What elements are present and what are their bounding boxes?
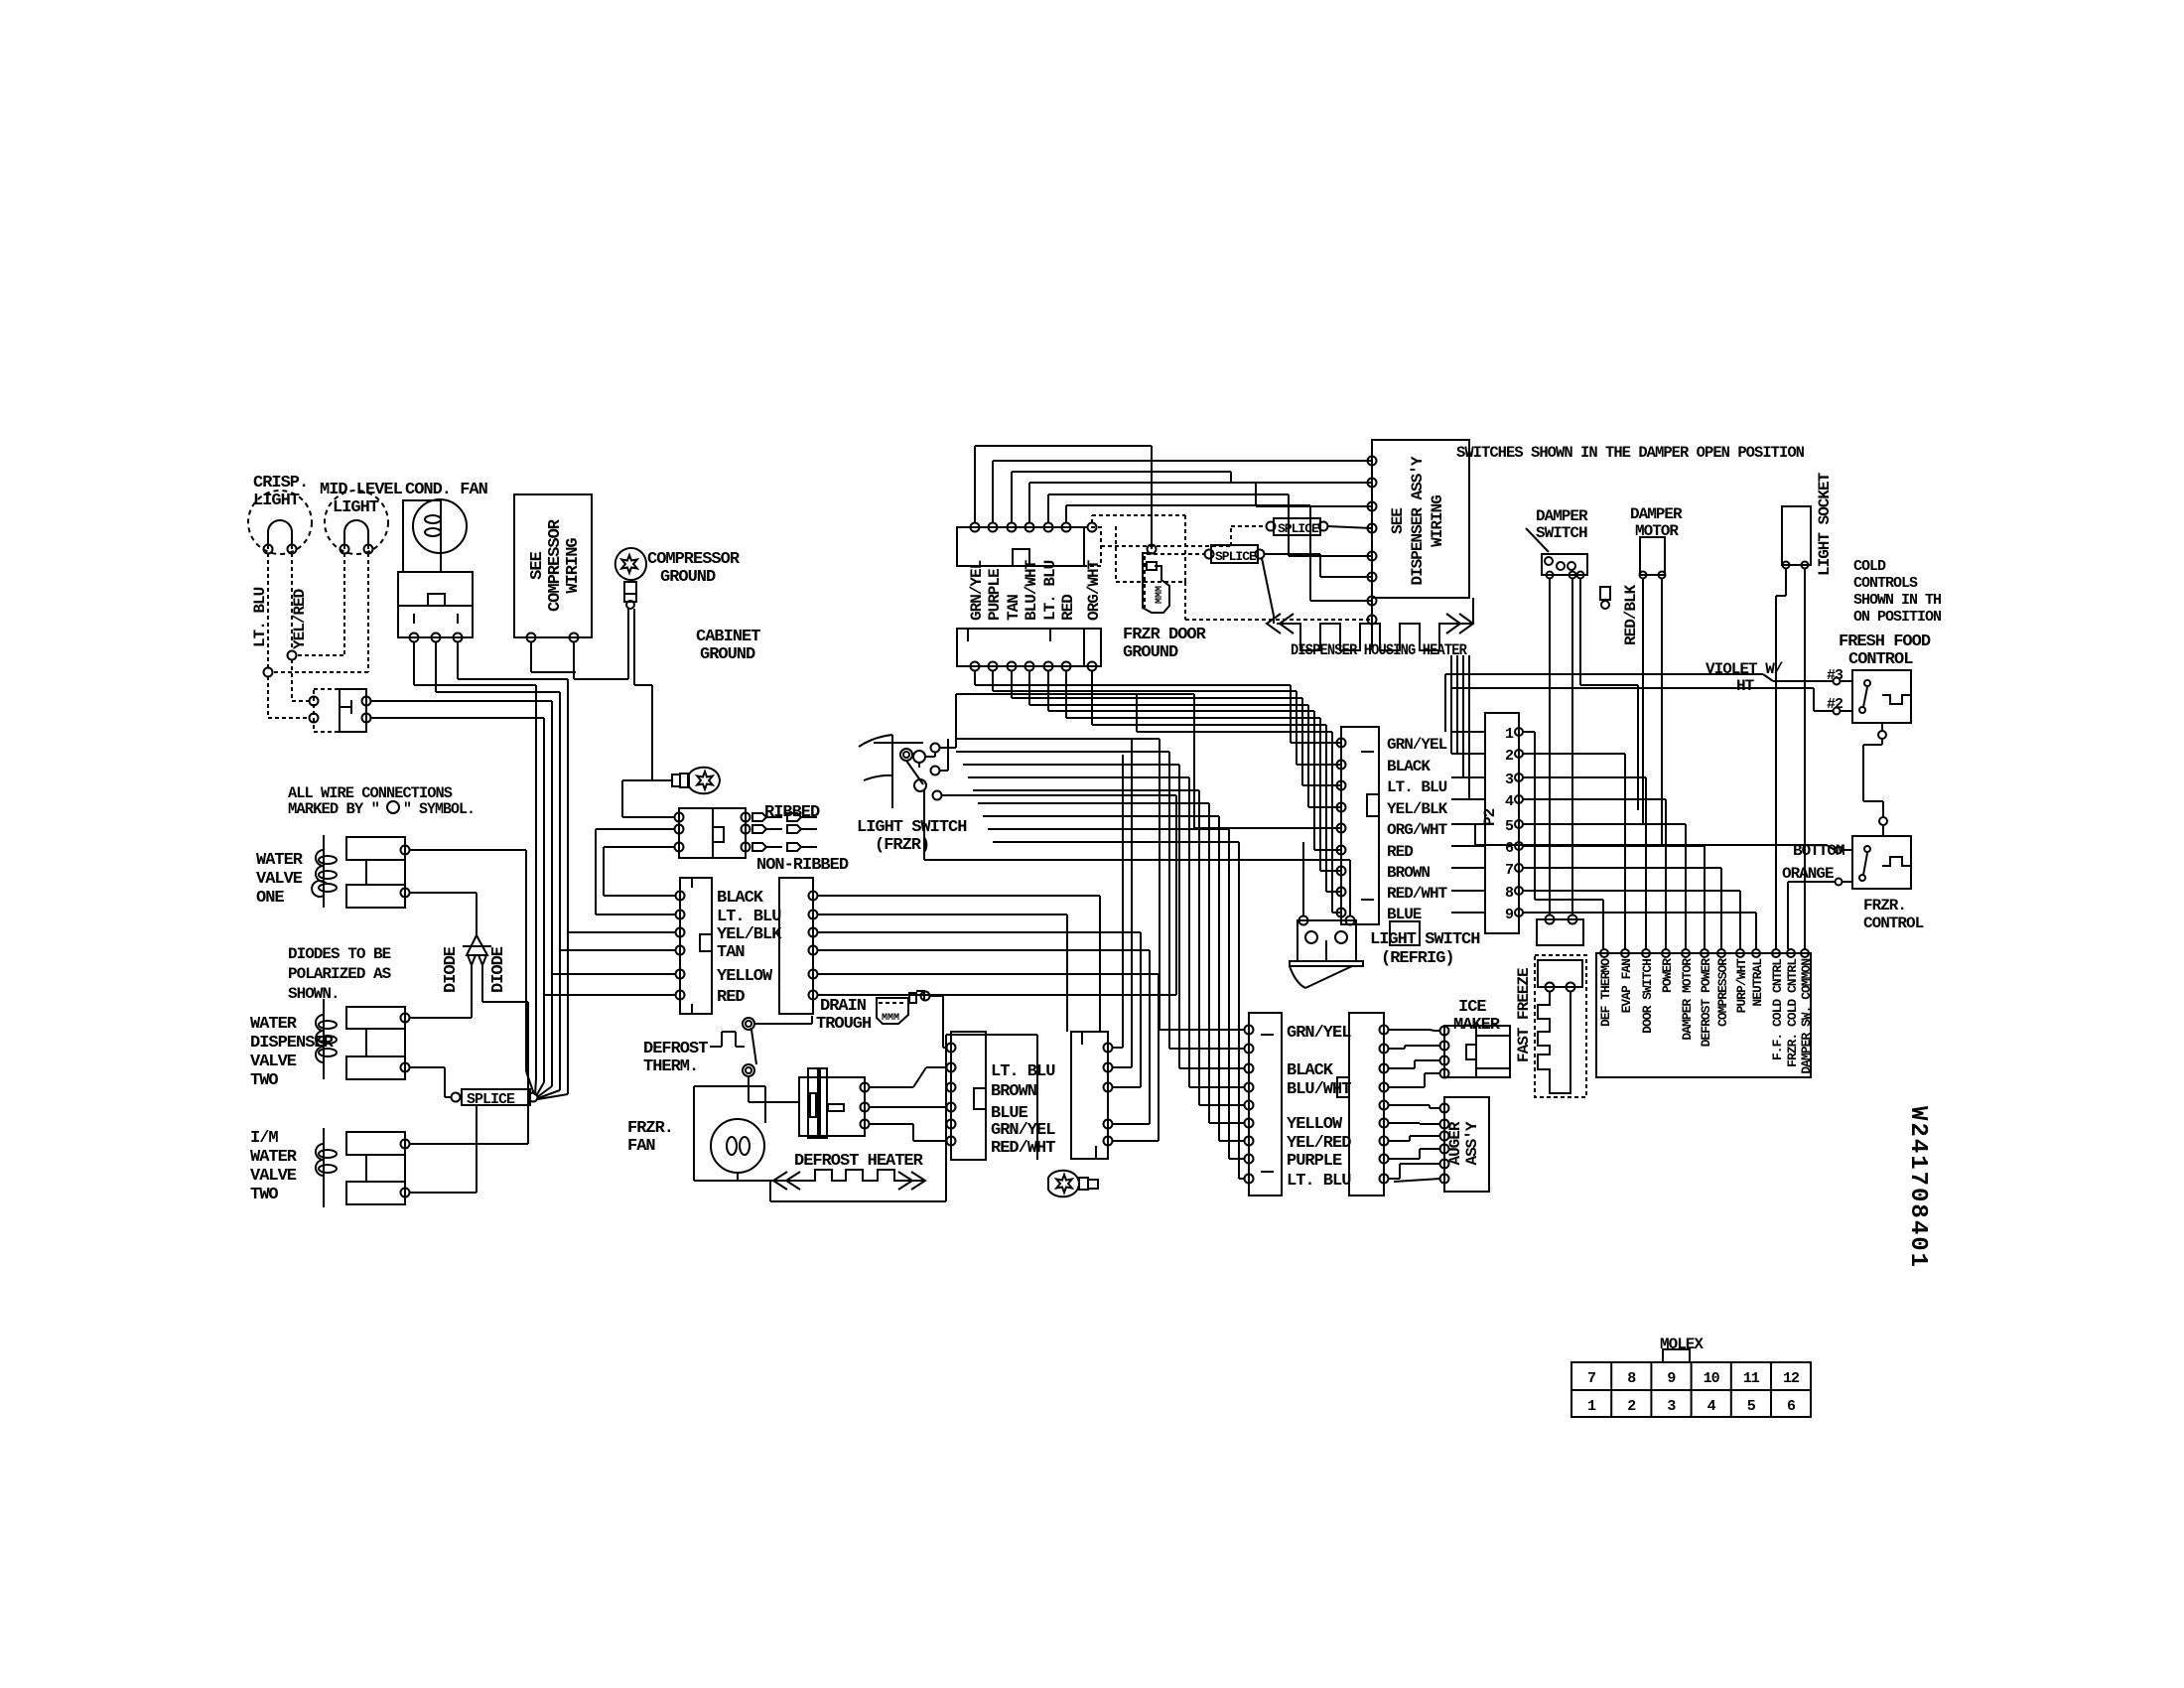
svg-text:ORG/WHT: ORG/WHT — [1387, 821, 1448, 839]
svg-text:4: 4 — [1707, 1398, 1716, 1415]
svg-text:COLD: COLD — [1853, 558, 1886, 575]
svg-text:" SYMBOL.: " SYMBOL. — [403, 800, 475, 818]
svg-text:VALVE: VALVE — [256, 870, 303, 889]
svg-text:FRZR.: FRZR. — [627, 1119, 673, 1138]
svg-text:W241708401: W241708401 — [1904, 1106, 1931, 1269]
svg-text:GROUND: GROUND — [700, 645, 755, 664]
svg-text:CABINET: CABINET — [696, 628, 760, 646]
svg-text:MMM: MMM — [1155, 586, 1165, 604]
svg-text:RED/WHT: RED/WHT — [991, 1139, 1055, 1158]
svg-text:ICE: ICE — [1458, 998, 1486, 1017]
svg-text:ORANGE: ORANGE — [1782, 865, 1834, 883]
svg-text:1: 1 — [1587, 1398, 1596, 1415]
svg-text:RED: RED — [717, 988, 745, 1007]
svg-text:DEFROST: DEFROST — [643, 1040, 708, 1058]
svg-text:COND. FAN: COND. FAN — [405, 481, 488, 499]
svg-text:F.F. COLD CNTRL: F.F. COLD CNTRL — [1770, 958, 1785, 1060]
svg-text:SPLICE: SPLICE — [1215, 549, 1257, 564]
svg-text:VALVE: VALVE — [250, 1053, 297, 1071]
svg-text:6: 6 — [1505, 840, 1514, 857]
svg-text:COMPRESSOR: COMPRESSOR — [546, 518, 565, 612]
svg-text:YELLOW: YELLOW — [1287, 1115, 1343, 1134]
svg-text:3: 3 — [1505, 772, 1514, 788]
svg-text:BLU/WHT: BLU/WHT — [1287, 1080, 1351, 1099]
svg-text:SHOWN.: SHOWN. — [288, 985, 340, 1003]
svg-text:RED/WHT: RED/WHT — [1387, 885, 1448, 903]
svg-text:EVAP FAN: EVAP FAN — [1619, 959, 1634, 1014]
svg-text:BLACK: BLACK — [1287, 1061, 1334, 1080]
svg-text:CONTROLS: CONTROLS — [1853, 575, 1918, 592]
svg-text:LT. BLU: LT. BLU — [1387, 778, 1447, 796]
svg-text:9: 9 — [1505, 907, 1514, 923]
svg-text:POWER: POWER — [1660, 958, 1675, 993]
svg-text:YEL/RED: YEL/RED — [291, 589, 309, 649]
svg-text:BROWN: BROWN — [1387, 864, 1430, 882]
svg-text:DIODE: DIODE — [489, 946, 508, 993]
svg-text:1: 1 — [1505, 726, 1514, 743]
svg-text:DAMPER: DAMPER — [1536, 507, 1588, 525]
svg-text:ON POSITION: ON POSITION — [1853, 609, 1942, 626]
svg-text:FRZR DOOR: FRZR DOOR — [1123, 626, 1207, 644]
svg-text:HT: HT — [1736, 677, 1755, 695]
svg-text:DIODES TO BE: DIODES TO BE — [288, 945, 391, 963]
svg-text:NON-RIBBED: NON-RIBBED — [756, 856, 849, 875]
svg-text:2: 2 — [1505, 748, 1514, 765]
svg-text:MOLEX: MOLEX — [1660, 1336, 1704, 1353]
svg-text:LT. BLU: LT. BLU — [717, 908, 781, 926]
svg-text:BLACK: BLACK — [717, 889, 764, 908]
svg-text:SEE: SEE — [1389, 508, 1407, 534]
svg-text:FAST FREEZE: FAST FREEZE — [1515, 968, 1533, 1062]
svg-text:11: 11 — [1743, 1370, 1760, 1387]
svg-text:I/M: I/M — [250, 1129, 278, 1148]
svg-text:YEL/BLK: YEL/BLK — [1387, 800, 1448, 818]
svg-text:WIRING: WIRING — [564, 538, 583, 594]
svg-text:ONE: ONE — [256, 889, 284, 908]
svg-text:DRAIN: DRAIN — [820, 997, 867, 1016]
svg-text:4: 4 — [1505, 793, 1514, 810]
svg-text:LIGHT SWITCH: LIGHT SWITCH — [857, 818, 967, 837]
svg-text:DAMPER SW. COMMON: DAMPER SW. COMMON — [1799, 959, 1814, 1074]
svg-text:BLU/WHT: BLU/WHT — [1023, 559, 1040, 621]
svg-text:2: 2 — [1627, 1398, 1636, 1415]
svg-text:NEUTRAL: NEUTRAL — [1750, 958, 1765, 1007]
svg-text:9: 9 — [1667, 1370, 1676, 1387]
svg-text:PURPLE: PURPLE — [1287, 1152, 1342, 1171]
svg-text:6: 6 — [1787, 1398, 1796, 1415]
svg-text:10: 10 — [1704, 1370, 1720, 1387]
svg-text:8: 8 — [1627, 1370, 1636, 1387]
svg-text:GRN/YEL: GRN/YEL — [968, 560, 986, 621]
svg-text:PURPLE: PURPLE — [986, 569, 1004, 621]
svg-text:(REFRIG): (REFRIG) — [1381, 949, 1454, 968]
svg-text:LIGHT: LIGHT — [333, 498, 379, 517]
svg-text:POLARIZED AS: POLARIZED AS — [288, 965, 392, 983]
svg-text:DEF THERMO: DEF THERMO — [1598, 958, 1613, 1027]
svg-text:WATER: WATER — [250, 1015, 298, 1034]
svg-text:COMPRESSOR: COMPRESSOR — [647, 550, 741, 569]
svg-text:CRISP.: CRISP. — [253, 474, 308, 492]
svg-text:(FRZR): (FRZR) — [875, 836, 929, 855]
svg-text:ORG/WHT: ORG/WHT — [1085, 559, 1103, 621]
svg-text:RED: RED — [1387, 843, 1413, 861]
svg-text:DIODE: DIODE — [442, 946, 461, 993]
svg-text:LIGHT SOCKET: LIGHT SOCKET — [1816, 472, 1834, 576]
svg-text:BLACK: BLACK — [1387, 758, 1431, 775]
svg-text:CONTROL: CONTROL — [1863, 914, 1924, 932]
svg-text:LT. BLU: LT. BLU — [251, 587, 269, 647]
svg-text:GRN/YEL: GRN/YEL — [1387, 736, 1447, 754]
svg-text:TAN: TAN — [1005, 595, 1023, 621]
svg-text:GROUND: GROUND — [660, 568, 716, 587]
svg-text:3: 3 — [1667, 1398, 1676, 1415]
svg-text:5: 5 — [1505, 818, 1514, 835]
svg-text:VALVE: VALVE — [250, 1167, 297, 1186]
svg-text:YELLOW: YELLOW — [717, 967, 773, 986]
svg-text:WATER: WATER — [250, 1148, 298, 1167]
svg-text:DISPENSER HOUSING HEATER: DISPENSER HOUSING HEATER — [1291, 641, 1467, 659]
svg-text:LT. BLU: LT. BLU — [1041, 560, 1059, 621]
svg-text:8: 8 — [1505, 885, 1514, 902]
svg-text:DISPENSER ASS'Y: DISPENSER ASS'Y — [1409, 456, 1427, 585]
svg-text:DEFROST HEATER: DEFROST HEATER — [794, 1152, 924, 1171]
svg-text:FAN: FAN — [627, 1137, 655, 1156]
svg-text:LT. BLU: LT. BLU — [991, 1062, 1055, 1081]
svg-text:TROUGH: TROUGH — [816, 1015, 872, 1034]
svg-text:RED/BLK: RED/BLK — [1622, 584, 1640, 645]
svg-text:FRESH FOOD: FRESH FOOD — [1839, 633, 1931, 651]
svg-text:5: 5 — [1747, 1398, 1756, 1415]
svg-text:SPLICE: SPLICE — [467, 1091, 515, 1108]
svg-text:SHOWN IN TH: SHOWN IN TH — [1853, 592, 1941, 609]
svg-text:MMM: MMM — [882, 1013, 899, 1024]
svg-text:DAMPER MOTOR: DAMPER MOTOR — [1680, 958, 1695, 1041]
svg-text:SPLICE: SPLICE — [1278, 521, 1319, 536]
svg-text:SWITCHES SHOWN IN THE DAMPER O: SWITCHES SHOWN IN THE DAMPER OPEN POSITI… — [1456, 444, 1804, 462]
svg-text:7: 7 — [1505, 862, 1513, 879]
svg-text:SWITCH: SWITCH — [1536, 524, 1587, 542]
svg-text:TAN: TAN — [717, 943, 745, 962]
svg-text:RED: RED — [1059, 595, 1077, 621]
svg-text:LIGHT SWITCH: LIGHT SWITCH — [1370, 930, 1480, 949]
svg-text:FRZR.: FRZR. — [1863, 897, 1906, 914]
svg-text:DOOR SWITCH: DOOR SWITCH — [1640, 959, 1655, 1034]
svg-text:DEFROST POWER: DEFROST POWER — [1699, 958, 1713, 1048]
svg-text:VIOLET W/: VIOLET W/ — [1706, 660, 1783, 678]
svg-text:THERM.: THERM. — [643, 1057, 698, 1076]
svg-text:MARKED BY ": MARKED BY " — [288, 800, 379, 818]
svg-text:ASS'Y: ASS'Y — [1463, 1121, 1481, 1165]
svg-text:FRZR. COLD CNTRL: FRZR. COLD CNTRL — [1785, 958, 1800, 1067]
svg-text:WIRING: WIRING — [1429, 495, 1446, 547]
svg-text:LT. BLU: LT. BLU — [1287, 1172, 1351, 1191]
svg-text:YEL/RED: YEL/RED — [1287, 1134, 1351, 1153]
svg-text:TWO: TWO — [250, 1071, 278, 1090]
svg-text:7: 7 — [1587, 1370, 1595, 1387]
svg-text:TWO: TWO — [250, 1186, 278, 1204]
svg-text:GROUND: GROUND — [1123, 643, 1178, 662]
svg-text:COMPRESSOR: COMPRESSOR — [1715, 958, 1730, 1027]
svg-text:WATER: WATER — [256, 851, 304, 870]
svg-text:BROWN: BROWN — [991, 1082, 1037, 1101]
svg-text:LIGHT: LIGHT — [253, 492, 300, 510]
svg-text:SEE: SEE — [528, 551, 547, 579]
svg-text:YEL/BLK: YEL/BLK — [717, 925, 782, 944]
svg-text:DAMPER: DAMPER — [1630, 505, 1683, 523]
svg-text:CONTROL: CONTROL — [1848, 650, 1913, 669]
svg-text:PURP/WHT: PURP/WHT — [1734, 958, 1749, 1014]
svg-text:AUGER: AUGER — [1446, 1121, 1464, 1165]
svg-text:12: 12 — [1783, 1370, 1800, 1387]
svg-text:GRN/YEL: GRN/YEL — [1287, 1024, 1351, 1043]
svg-text:GRN/YEL: GRN/YEL — [991, 1121, 1055, 1140]
